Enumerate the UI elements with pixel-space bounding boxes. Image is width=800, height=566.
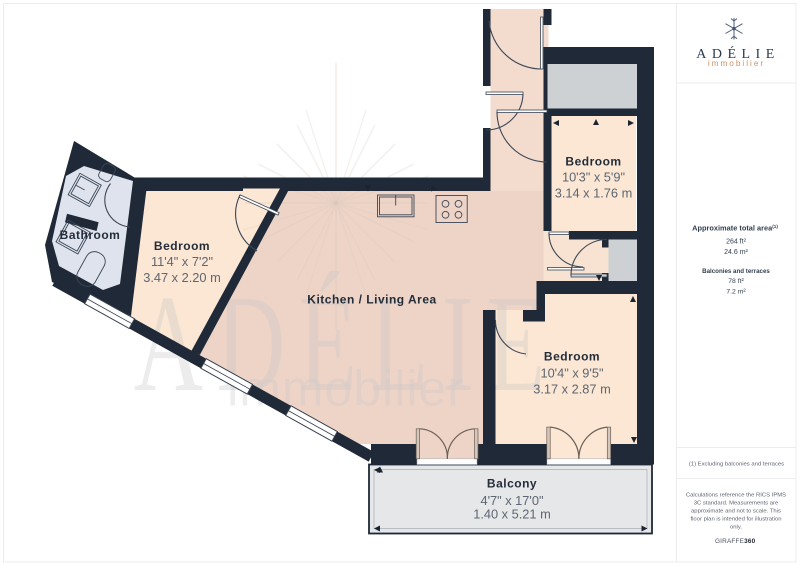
svg-text:1.40 x 5.21 m: 1.40 x 5.21 m [473, 507, 551, 522]
svg-text:Bedroom: Bedroom [565, 155, 621, 169]
svg-text:10'3" x 5'9": 10'3" x 5'9" [562, 170, 625, 185]
svg-text:3.17 x 2.87 m: 3.17 x 2.87 m [533, 382, 611, 397]
svg-text:Kitchen / Living Area: Kitchen / Living Area [307, 293, 436, 307]
svg-text:264 ft²: 264 ft² [726, 239, 747, 246]
svg-text:Calculations reference the RIC: Calculations reference the RICS IPMS [686, 493, 786, 499]
svg-text:3C standard. Measurements are: 3C standard. Measurements are [694, 501, 779, 507]
svg-text:3.14 x 1.76 m: 3.14 x 1.76 m [555, 186, 633, 201]
svg-text:78 ft²: 78 ft² [728, 278, 744, 285]
svg-text:24.6 m²: 24.6 m² [724, 249, 748, 256]
svg-text:immobilier: immobilier [227, 361, 465, 417]
svg-text:floor plan is intended for ill: floor plan is intended for illustration [690, 517, 781, 523]
svg-text:Approximate total area(1): Approximate total area(1) [692, 223, 778, 232]
svg-text:immobilier: immobilier [708, 59, 765, 68]
svg-text:3.47 x 2.20 m: 3.47 x 2.20 m [143, 270, 221, 285]
svg-text:Bathroom: Bathroom [60, 228, 121, 242]
svg-text:(1) Excluding balconies and te: (1) Excluding balconies and terraces [689, 461, 784, 467]
svg-text:only.: only. [730, 524, 742, 530]
svg-text:Bedroom: Bedroom [154, 239, 210, 253]
svg-text:Balconies and terraces: Balconies and terraces [702, 268, 770, 275]
svg-text:7.2 m²: 7.2 m² [726, 289, 746, 296]
svg-text:10'4" x 9'5": 10'4" x 9'5" [540, 366, 603, 381]
svg-text:Bedroom: Bedroom [544, 350, 600, 364]
svg-text:11'4" x 7'2": 11'4" x 7'2" [151, 254, 213, 269]
svg-text:approximate and not to scale.: approximate and not to scale. This [691, 509, 781, 515]
svg-text:Balcony: Balcony [487, 477, 537, 491]
svg-text:GIRAFFE360: GIRAFFE360 [715, 538, 756, 545]
